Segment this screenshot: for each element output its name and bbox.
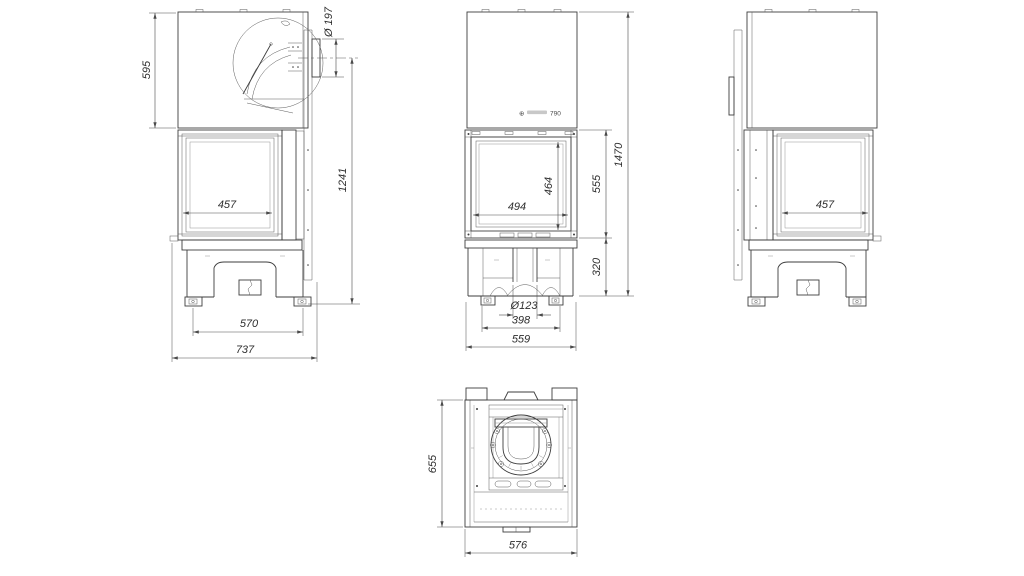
brand-logo: ⊕ 790 — [519, 111, 561, 118]
dim-front-body-width: 559 — [512, 334, 530, 346]
technical-drawing: 595 Ø 197 1241 457 570 737 — [0, 0, 1024, 576]
left-side-view: 595 Ø 197 1241 457 570 737 — [141, 6, 360, 362]
drawing-sheet: 595 Ø 197 1241 457 570 737 — [0, 0, 1024, 576]
flue-bolts — [490, 428, 551, 466]
dim-top-depth: 655 — [427, 454, 439, 473]
dim-left-hood-height: 595 — [141, 60, 153, 79]
dim-right-glass-depth: 457 — [816, 199, 835, 211]
front-hood: ⊕ 790 — [467, 10, 577, 129]
dim-front-glass-height: 464 — [543, 177, 555, 195]
brand-word — [527, 111, 547, 115]
left-dimensions: 595 Ø 197 1241 457 570 737 — [141, 6, 360, 362]
right-hood — [747, 10, 877, 129]
dim-front-feet-span: 398 — [512, 315, 531, 327]
top-flue-collar — [490, 415, 551, 475]
dim-left-flue-axis-height: 1241 — [337, 168, 349, 192]
right-dimensions: 457 — [782, 199, 868, 213]
front-door — [465, 130, 577, 238]
right-door — [744, 130, 881, 241]
dim-left-glass-depth: 457 — [218, 199, 237, 211]
brand-model: 790 — [550, 111, 561, 118]
right-side-view: 457 — [729, 10, 881, 307]
dim-top-width: 576 — [509, 540, 528, 552]
brand-mark-icon: ⊕ — [519, 111, 525, 118]
dim-left-flue-diameter: Ø 197 — [323, 6, 335, 38]
left-base — [182, 240, 311, 306]
dim-front-glass-width: 494 — [508, 201, 526, 213]
dim-front-firebox-height: 555 — [591, 174, 603, 193]
left-detail-circle — [233, 18, 323, 113]
right-rear-shield — [729, 30, 742, 280]
dim-left-feet-span: 570 — [240, 318, 259, 330]
top-dimensions: 655 576 — [427, 400, 577, 557]
dim-front-air-inlet-diameter: Ø123 — [510, 300, 539, 312]
left-hood — [178, 10, 308, 129]
top-view: 655 576 — [427, 388, 577, 557]
top-body — [465, 388, 577, 532]
dim-left-total-depth: 737 — [236, 344, 255, 356]
dim-front-base-height: 320 — [591, 257, 603, 276]
left-door — [170, 130, 304, 241]
front-view: ⊕ 790 — [465, 10, 634, 352]
front-base — [465, 240, 577, 305]
right-base — [748, 240, 868, 306]
dim-front-total-height: 1470 — [613, 142, 625, 167]
left-rear-shield — [298, 30, 358, 280]
